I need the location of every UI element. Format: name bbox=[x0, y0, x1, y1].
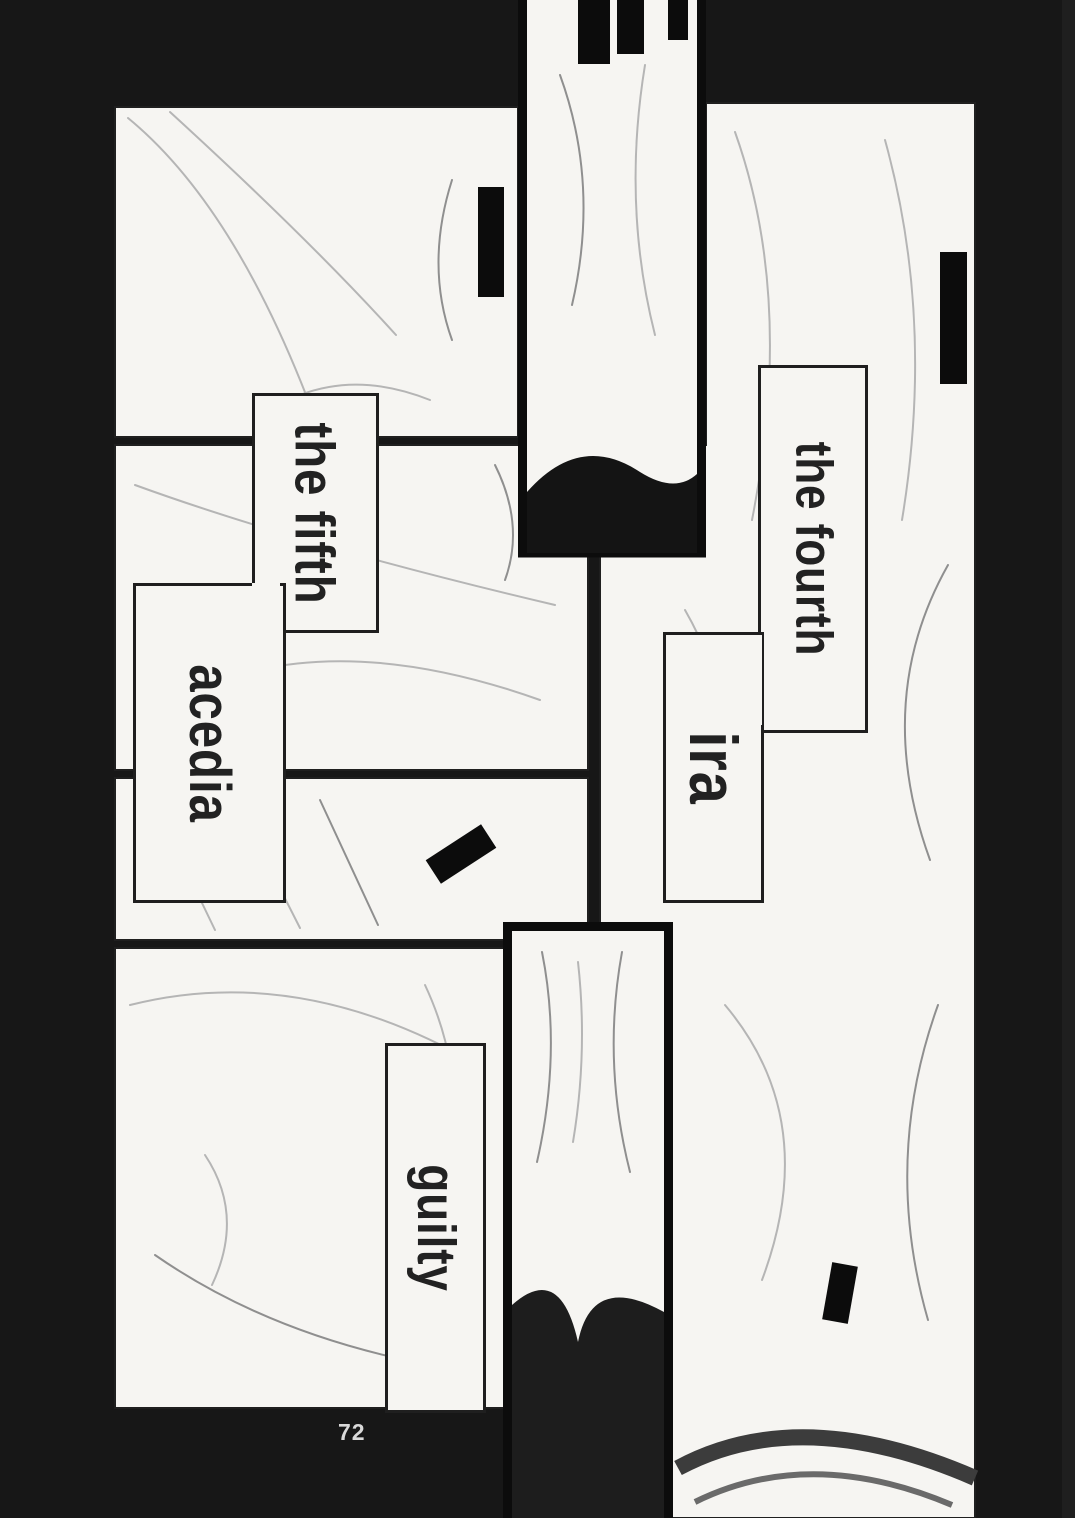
caption-box-ira: ira bbox=[663, 632, 764, 903]
caption-text-ira: ira bbox=[675, 731, 753, 804]
censor-bar-1 bbox=[478, 187, 504, 297]
censor-bar-5 bbox=[578, 0, 610, 64]
censor-bar-6 bbox=[617, 0, 644, 54]
caption-box-acedia: acedia bbox=[133, 583, 286, 903]
caption-box-guilty: guilty bbox=[385, 1043, 486, 1413]
caption-text-the-fourth: the fourth bbox=[783, 442, 843, 657]
caption-box-the-fourth: the fourth bbox=[758, 365, 868, 733]
censor-bar-7 bbox=[668, 0, 688, 40]
caption-text-the-fifth: the fifth bbox=[283, 422, 348, 604]
page-number: 72 bbox=[338, 1419, 366, 1446]
caption-union-patch-fifth-acedia bbox=[252, 583, 280, 627]
comic-page: the fifth acedia the fourth ira guilty 7… bbox=[0, 0, 1075, 1518]
comic-panel-top-left bbox=[115, 107, 518, 437]
caption-union-patch-fourth-ira bbox=[755, 635, 762, 725]
censor-bar-2 bbox=[940, 252, 967, 384]
caption-text-guilty: guilty bbox=[405, 1164, 467, 1292]
caption-text-acedia: acedia bbox=[176, 664, 243, 823]
